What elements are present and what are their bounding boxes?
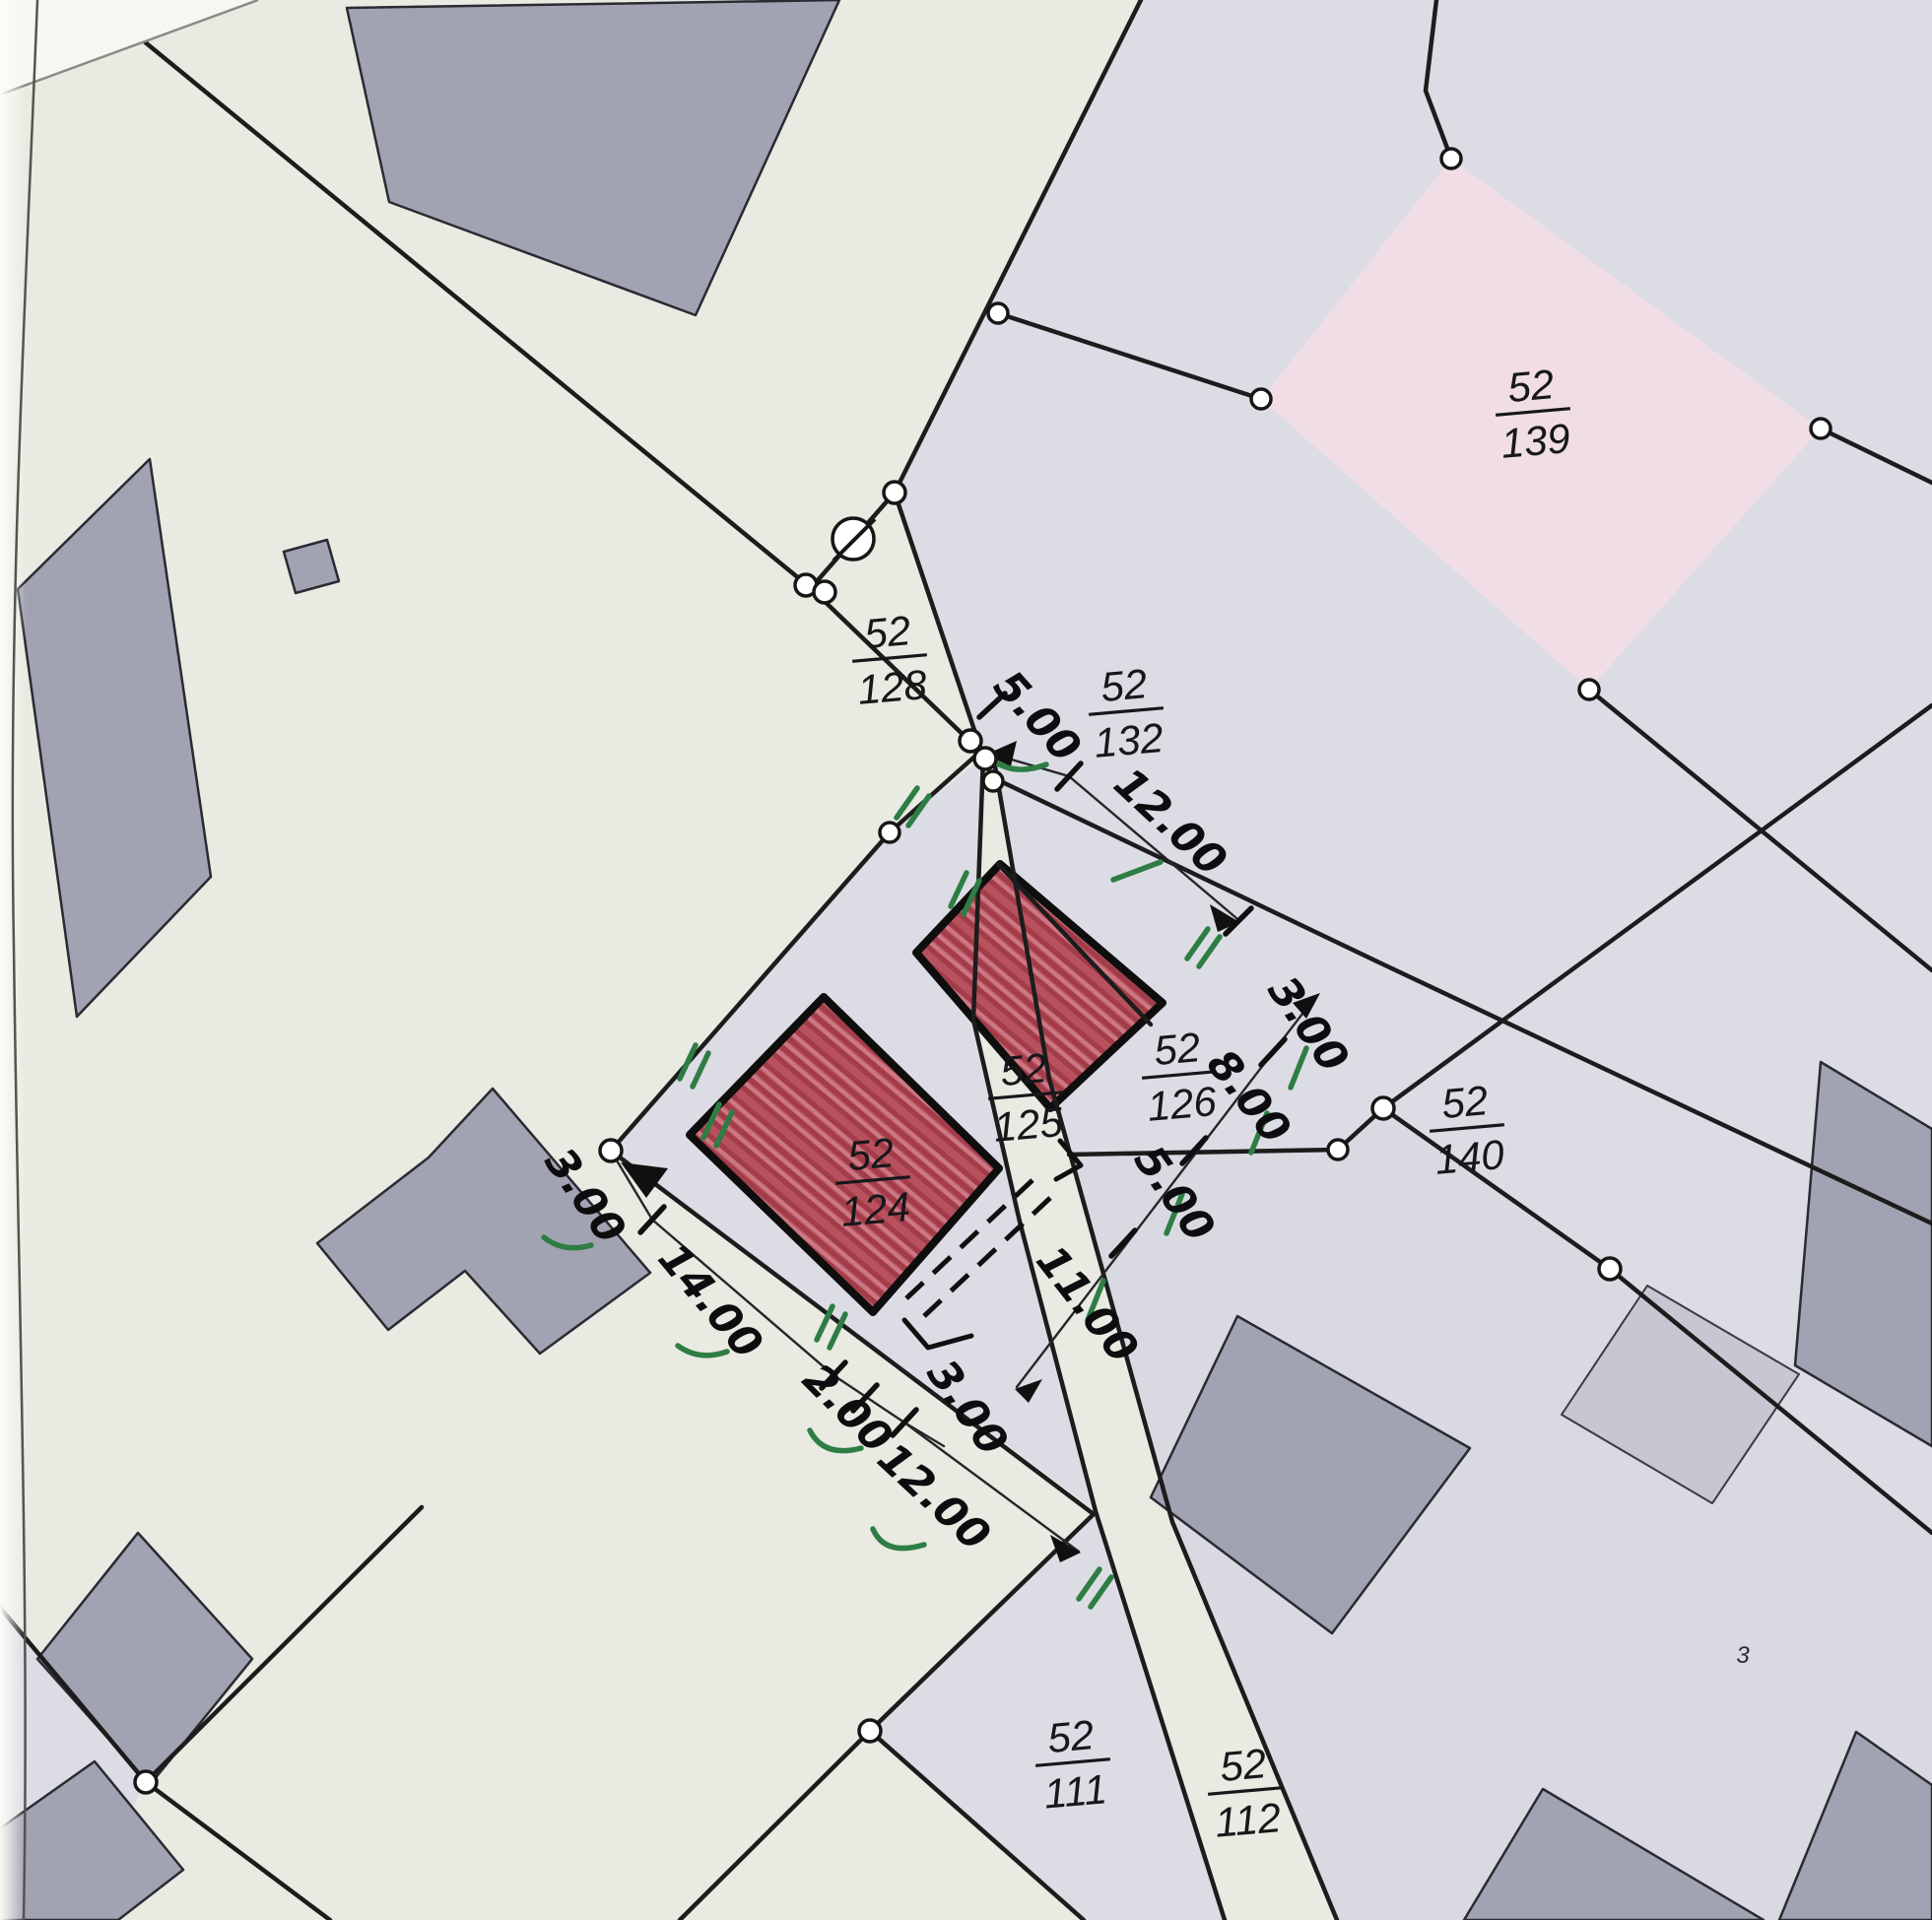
parcel-denominator: 111 [1042, 1765, 1109, 1817]
survey-point [884, 482, 905, 503]
parcel-denominator: 139 [1499, 415, 1572, 467]
parcel-denominator: 140 [1433, 1131, 1507, 1183]
survey-point [135, 1771, 157, 1793]
survey-point [974, 748, 996, 769]
parcel-denominator: 112 [1213, 1794, 1283, 1846]
parcel-number: 52 [998, 1044, 1048, 1094]
scanned-site-plan-page: 52 128 52 132 52 139 52 125 52 126 52 12… [0, 0, 1932, 1920]
survey-point [600, 1140, 622, 1161]
parcel-denominator: 132 [1093, 714, 1166, 766]
survey-point [1599, 1258, 1621, 1280]
survey-point [1328, 1140, 1348, 1159]
parcel-denominator: 126 [1146, 1078, 1220, 1130]
survey-point [1251, 389, 1271, 409]
survey-point [1372, 1097, 1394, 1119]
parcel-number: 52 [1152, 1024, 1202, 1074]
parcel-denominator: 128 [856, 661, 930, 713]
parcel-denominator: 124 [839, 1183, 912, 1235]
parcel-number: 52 [1505, 361, 1556, 411]
survey-point [1579, 680, 1599, 699]
parcel-number: 52 [845, 1129, 896, 1179]
small-map-numeral: 3 [1736, 1642, 1750, 1669]
survey-point [988, 303, 1008, 323]
survey-point [1441, 149, 1461, 168]
survey-point [859, 1720, 881, 1742]
cadastral-map-svg: 52 128 52 132 52 139 52 125 52 126 52 12… [0, 0, 1932, 1920]
parcel-number: 52 [862, 607, 912, 657]
survey-point [1811, 419, 1831, 438]
parcel-number: 52 [1099, 660, 1149, 710]
parcel-number: 52 [1218, 1740, 1268, 1790]
survey-point [814, 581, 835, 603]
parcel-denominator: 125 [992, 1098, 1066, 1151]
parcel-number: 52 [1045, 1711, 1096, 1761]
parcel-number: 52 [1439, 1077, 1490, 1127]
survey-point [983, 771, 1003, 791]
survey-point [880, 823, 899, 842]
